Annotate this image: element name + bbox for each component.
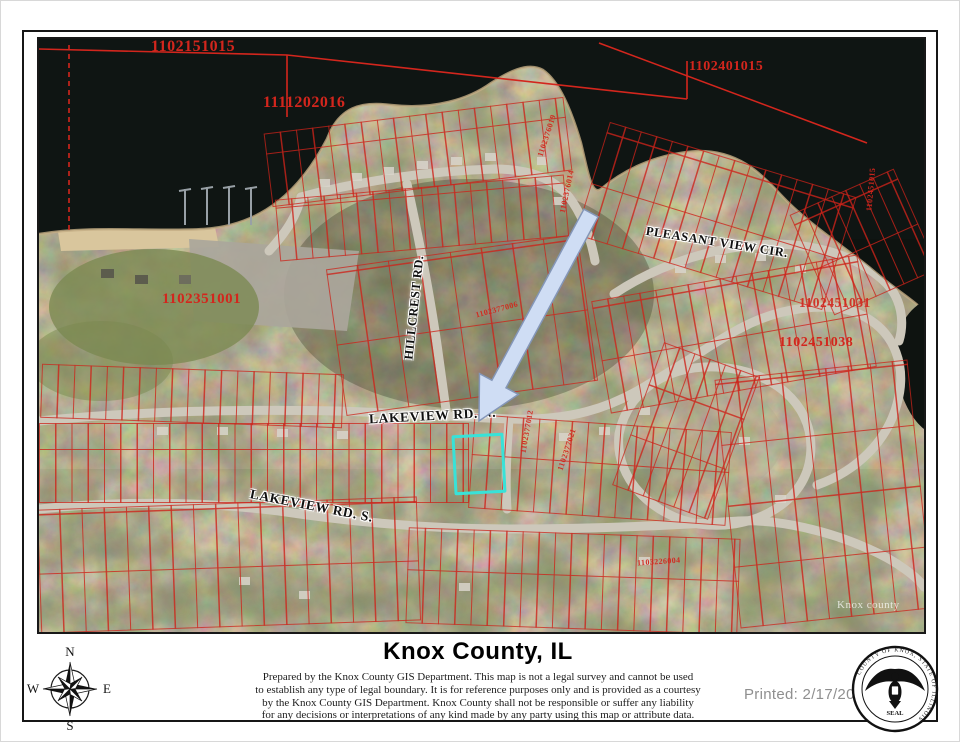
compass-e: E	[103, 681, 111, 696]
parcel-lines-patch	[40, 364, 344, 429]
map-watermark: Knox county	[837, 599, 900, 611]
compass-w: W	[27, 681, 40, 696]
map-title: Knox County, IL	[22, 638, 934, 666]
parcel-lines-patch	[405, 527, 740, 634]
disclaimer-line: for any decisions or interpretations of …	[22, 709, 934, 722]
aerial-map: 1102151015 1102401015 1111202016 1102351…	[37, 37, 926, 634]
parcel-id-label: 1102151015	[151, 38, 235, 56]
parcel-id-label: 1102451031	[799, 295, 871, 311]
parcel-id-label: 1111202016	[263, 94, 345, 112]
county-seal-icon: COUNTY OF KNOX, STATE OF ILLINOIS SEAL	[851, 645, 939, 733]
disclaimer-line: Prepared by the Knox County GIS Departme…	[22, 671, 934, 684]
compass-star	[43, 662, 97, 716]
compass-n: N	[65, 644, 75, 659]
highlighted-parcel	[451, 433, 506, 496]
parcel-id-label: 1102401015	[689, 59, 763, 75]
seal-word: SEAL	[887, 710, 905, 717]
compass-s: S	[66, 718, 73, 733]
parcel-id-label: 1102351001	[162, 291, 241, 308]
parcel-id-label: 1102451038	[779, 335, 853, 351]
compass-rose-icon: N S W E	[24, 641, 116, 733]
